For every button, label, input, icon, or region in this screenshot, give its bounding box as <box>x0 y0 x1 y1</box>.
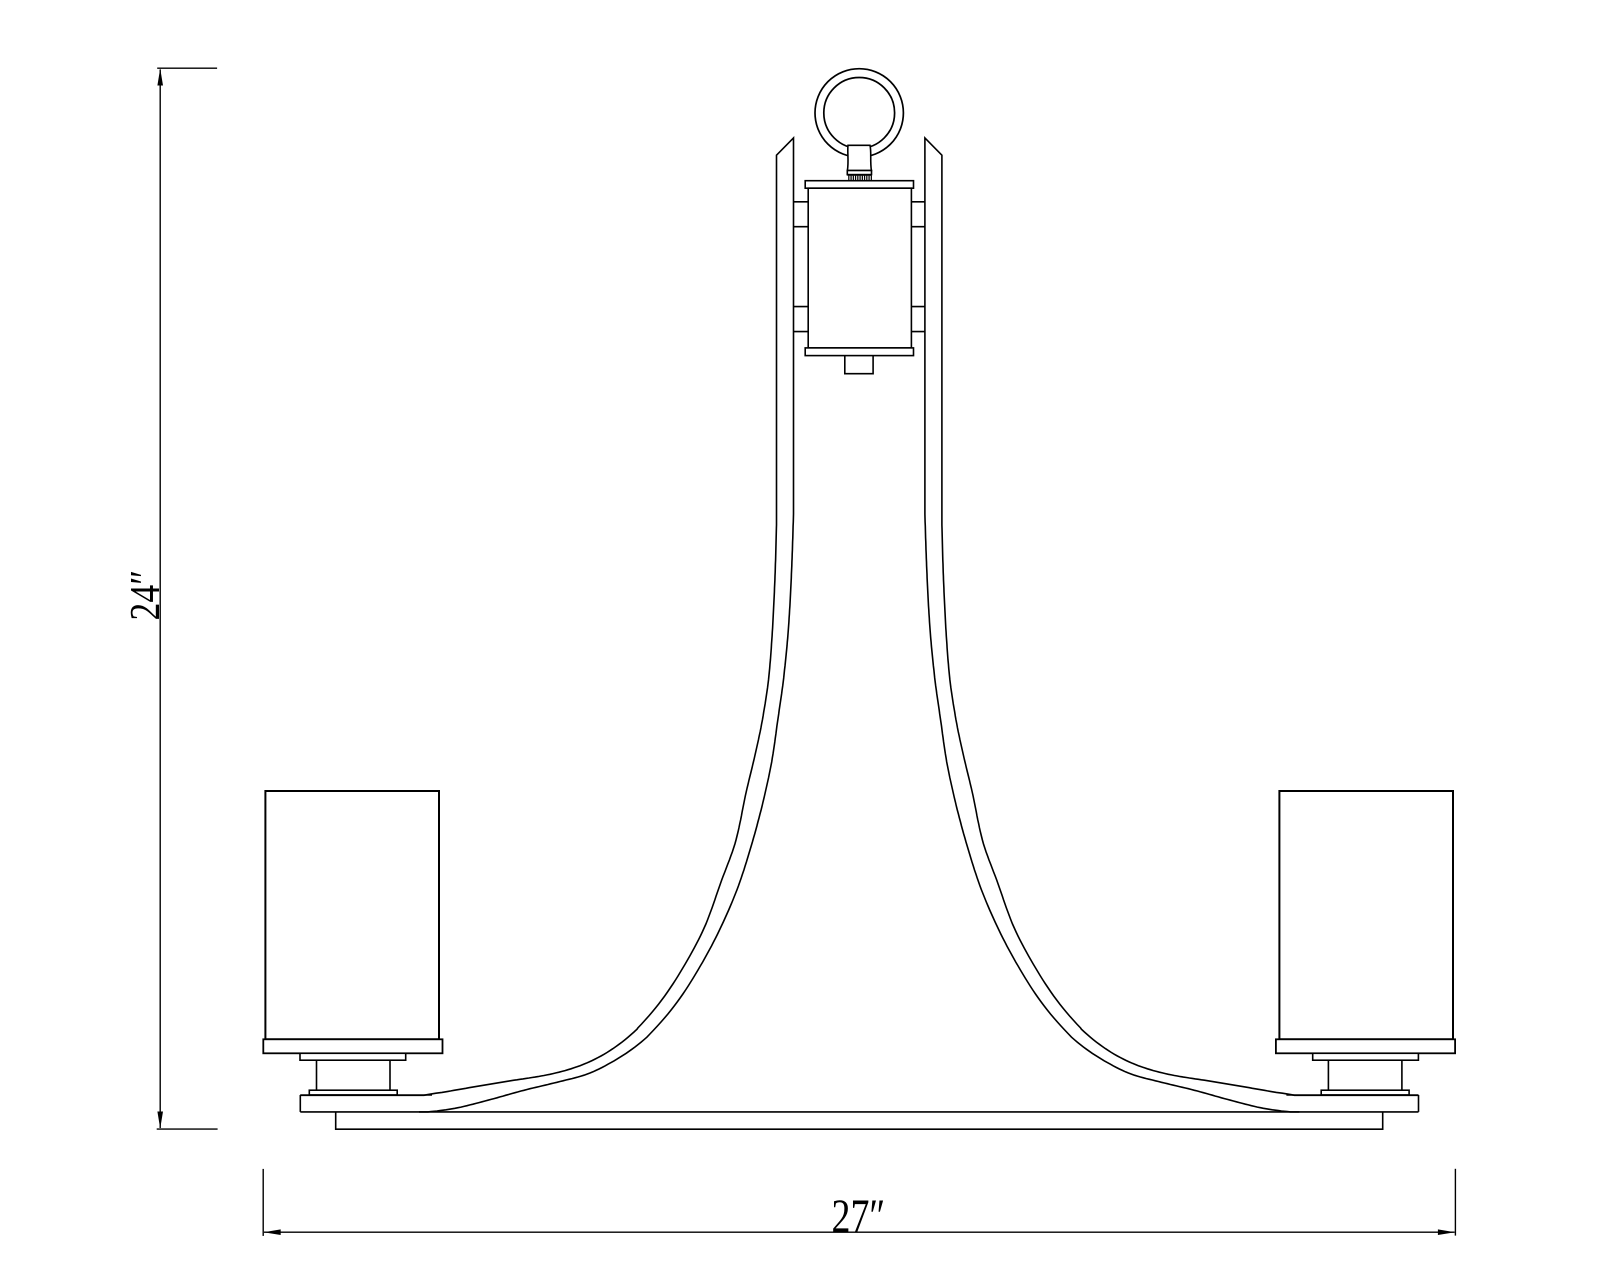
svg-text:24″: 24″ <box>122 570 168 621</box>
svg-text:27″: 27″ <box>832 1190 886 1243</box>
